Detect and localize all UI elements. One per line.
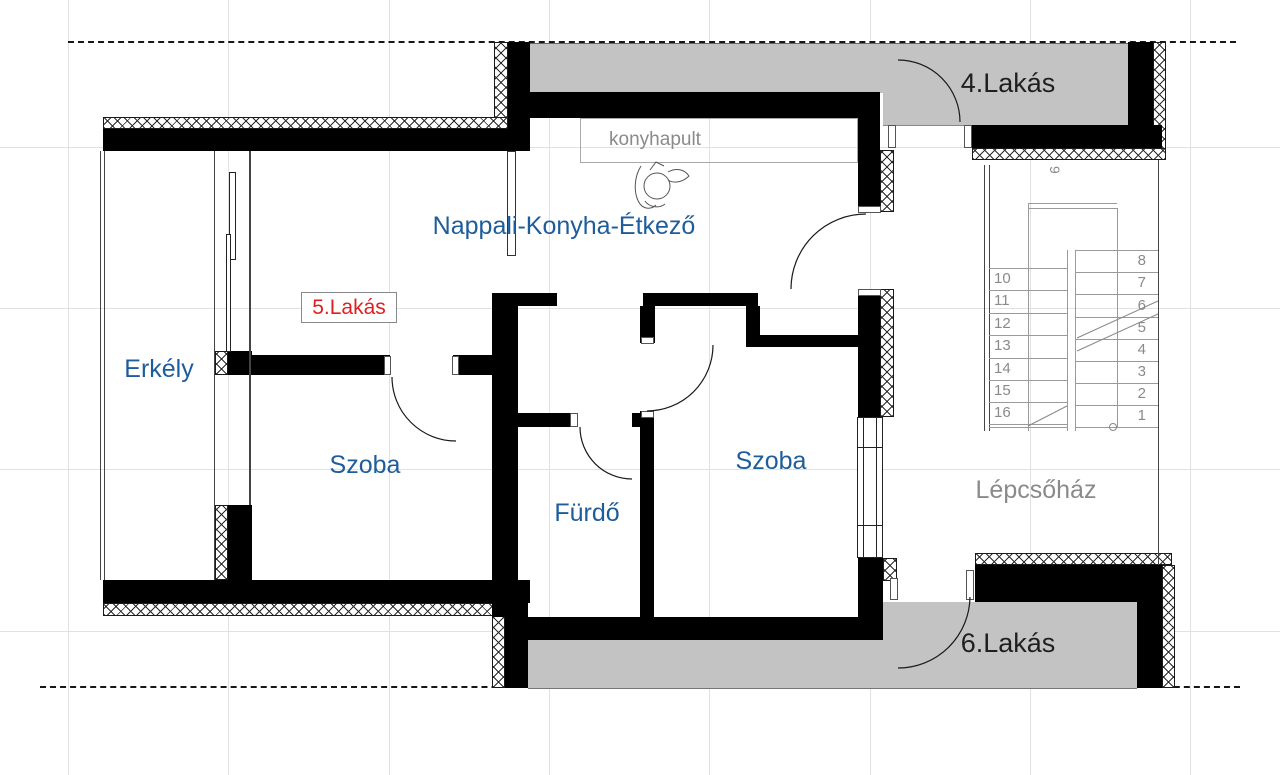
stair-step-line	[1075, 427, 1158, 428]
stair-number: 5	[1116, 318, 1146, 338]
insulation-hatch	[215, 351, 228, 375]
door-jamb-tick	[858, 289, 881, 296]
grid-line	[68, 0, 69, 775]
door-arc-room-right	[647, 345, 713, 411]
stair-stringer-line	[989, 165, 990, 431]
stair-number: 2	[1116, 384, 1146, 404]
stair-divider-line	[1067, 250, 1068, 431]
wall-segment	[1128, 42, 1153, 125]
door-jamb-tick	[452, 356, 459, 375]
wall-segment	[746, 335, 858, 347]
balcony-glazing-line	[249, 151, 251, 505]
balcony-edge-line	[104, 151, 105, 580]
stair-number: 6	[1116, 296, 1146, 316]
balcony-glazing-line	[214, 151, 215, 580]
door-jamb-tick	[384, 356, 391, 375]
floorplan-canvas: Nappali-Konyha-Étkező konyhapult 5.Lakás…	[0, 0, 1280, 775]
door-jamb-tick	[858, 206, 881, 213]
door-jamb-tick	[641, 337, 654, 344]
stair-direction-line	[1028, 406, 1067, 426]
kitchen-sink-icon	[635, 162, 689, 208]
door-arc-room-left	[392, 377, 456, 441]
stairwell-window-frame-line	[858, 525, 882, 526]
door-arc-entrance	[791, 214, 866, 289]
insulation-hatch	[1162, 565, 1175, 688]
stair-number: 16	[994, 403, 1024, 423]
wall-segment	[103, 580, 530, 603]
wall-segment	[858, 289, 880, 417]
wall-segment	[228, 355, 390, 375]
stair-number: 13	[994, 336, 1024, 356]
insulation-hatch	[880, 289, 894, 417]
insulation-hatch	[215, 505, 228, 580]
wall-segment	[1137, 602, 1162, 688]
stair-number: 15	[994, 381, 1024, 401]
insulation-hatch	[103, 603, 505, 616]
stair-landing-line	[1028, 208, 1117, 209]
stairwell-window	[857, 417, 883, 558]
stair-flight-edge	[1028, 203, 1029, 431]
label-apartment-6: 6.Lakás	[938, 628, 1078, 659]
insulation-hatch	[494, 42, 508, 118]
wall-segment	[632, 413, 640, 427]
stair-number: 8	[1116, 251, 1146, 271]
wall-segment	[492, 305, 518, 617]
door-jamb-tick	[888, 125, 896, 148]
wall-segment	[858, 92, 880, 212]
stair-number: 3	[1116, 362, 1146, 382]
label-living-kitchen-dining: Nappali-Konyha-Étkező	[424, 212, 704, 241]
door-jamb-tick	[890, 578, 898, 600]
stair-bottom-line	[989, 427, 1067, 428]
stair-number: 11	[994, 291, 1024, 311]
balcony-edge-line	[100, 151, 101, 580]
insulation-hatch	[492, 608, 505, 688]
wall-segment	[103, 129, 530, 151]
stair-number-landing: 9	[1045, 166, 1065, 180]
stairwell-window-frame-line	[863, 418, 864, 557]
wall-segment	[492, 293, 557, 306]
stair-number: 7	[1116, 273, 1146, 293]
sliding-door-panel	[226, 234, 231, 352]
insulation-hatch	[972, 148, 1166, 160]
insulation-hatch	[103, 117, 508, 129]
grid-line	[1190, 0, 1191, 775]
wall-segment	[508, 42, 530, 151]
label-balcony: Erkély	[109, 355, 209, 384]
label-room-left: Szoba	[315, 451, 415, 480]
wall-segment	[518, 413, 578, 427]
label-stairwell: Lépcsőház	[961, 476, 1111, 505]
wall-segment	[972, 125, 1162, 148]
stair-number: 1	[1116, 406, 1146, 426]
stair-divider-line	[1075, 250, 1076, 431]
stair-number: 4	[1116, 340, 1146, 360]
wall-segment	[505, 617, 883, 640]
insulation-hatch	[880, 150, 894, 212]
stair-number: 12	[994, 314, 1024, 334]
stairwell-window-frame-line	[876, 418, 877, 557]
wall-segment	[643, 293, 758, 306]
stair-step-line	[1075, 294, 1158, 295]
door-jamb-tick	[570, 413, 578, 427]
insulation-hatch	[975, 553, 1172, 565]
door-arc-bathroom	[580, 427, 632, 479]
stair-step-line	[989, 424, 1067, 425]
label-room-right: Szoba	[721, 447, 821, 476]
label-kitchen-counter: konyhapult	[595, 129, 715, 151]
stair-number: 14	[994, 359, 1024, 379]
label-apartment-5: 5.Lakás	[301, 292, 397, 323]
stairwell-window-frame-line	[858, 447, 882, 448]
wall-segment	[975, 565, 1162, 602]
wall-segment	[530, 92, 880, 118]
wall-segment	[228, 505, 252, 580]
stair-stringer-line	[984, 165, 985, 431]
door-jamb-tick	[641, 411, 654, 418]
wall-segment	[640, 411, 654, 617]
label-apartment-4: 4.Lakás	[938, 68, 1078, 99]
stair-landing-line	[1028, 203, 1117, 204]
stair-number: 10	[994, 269, 1024, 289]
stairwell-boundary-line	[1158, 160, 1159, 565]
door-jamb-tick	[966, 570, 974, 600]
door-jamb-tick	[964, 125, 972, 148]
apartment6-floor	[528, 640, 883, 689]
label-bathroom: Fürdő	[537, 499, 637, 528]
